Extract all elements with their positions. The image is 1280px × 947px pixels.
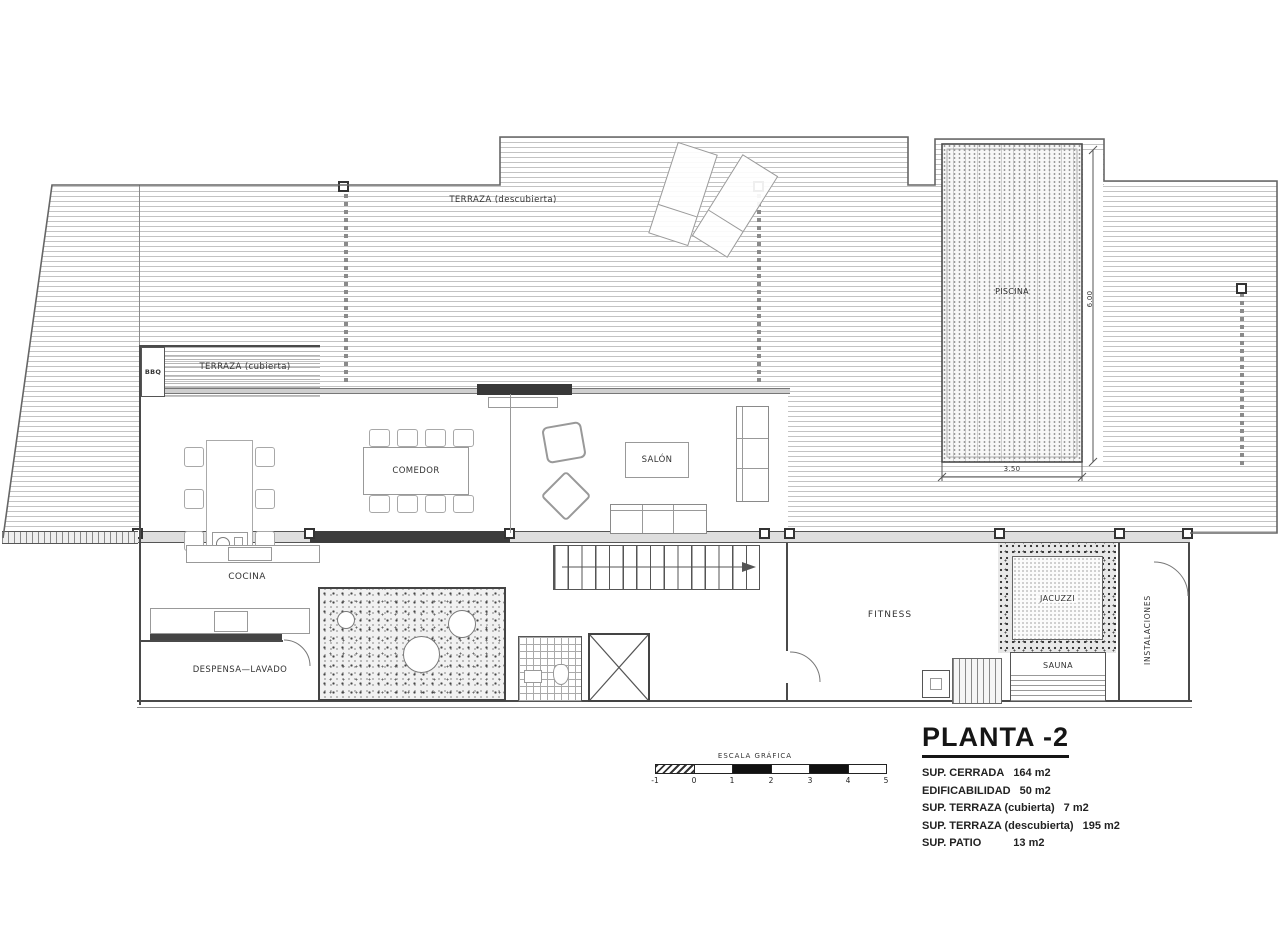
scale-segment <box>772 765 811 773</box>
deck-border-strip <box>2 531 138 544</box>
pool-width-dimension: 3.50 <box>992 465 1032 473</box>
scale-tick: 5 <box>884 776 889 785</box>
stat-label: SUP. CERRADA <box>922 767 1004 779</box>
patio-tree <box>403 636 440 673</box>
column-post <box>994 528 1005 539</box>
coffee-table: SALÓN <box>625 442 689 478</box>
chair <box>453 495 474 513</box>
column-post <box>1114 528 1125 539</box>
scale-segment <box>695 765 734 773</box>
stove-box-inner <box>930 678 942 690</box>
stool <box>184 447 204 467</box>
room-label-piscina: PISCINA <box>975 287 1049 296</box>
staircase <box>553 545 760 590</box>
glazing-south-dark-segment <box>310 531 510 543</box>
column-post <box>1182 528 1193 539</box>
room-label-terraza-cubierta: TERRAZA (cubierta) <box>185 362 305 372</box>
room-label-salon: SALÓN <box>642 455 673 465</box>
stat-row: SUP. TERRAZA (descubierta)195 m2 <box>922 818 1202 836</box>
room-label-jacuzzi: JACUZZI <box>1038 594 1077 603</box>
stat-value: 50 m2 <box>1020 785 1051 797</box>
stat-value: 13 m2 <box>1013 837 1044 849</box>
scale-segment <box>733 765 772 773</box>
scale-segment <box>849 765 887 773</box>
wall-despensa-north <box>139 640 283 642</box>
chair <box>369 495 390 513</box>
room-label-fitness: FITNESS <box>852 610 928 620</box>
sauna <box>1010 652 1106 702</box>
sliding-door-stack <box>477 384 572 395</box>
chair <box>397 495 418 513</box>
scale-segment <box>810 765 849 773</box>
room-label-terraza-descubierta: TERRAZA (descubierta) <box>438 195 568 205</box>
facade-glazing-north <box>140 388 790 394</box>
pool-length-dimension: 6.00 <box>1086 284 1094 314</box>
countertop-edge <box>150 634 282 640</box>
dining-table: COMEDOR <box>363 447 469 495</box>
stat-value: 195 m2 <box>1083 820 1120 832</box>
stat-label: SUP. PATIO <box>922 837 981 849</box>
sauna-steps <box>952 658 1002 704</box>
elevator <box>588 633 650 702</box>
column-post <box>1236 283 1247 294</box>
stool <box>255 447 275 467</box>
pool <box>942 144 1082 462</box>
scale-tick: -1 <box>651 776 658 785</box>
stat-row: EDIFICABILIDAD50 m2 <box>922 783 1202 801</box>
room-label-comedor: COMEDOR <box>392 466 439 476</box>
stool <box>184 489 204 509</box>
scale-bar-title: ESCALA GRÁFICA <box>695 752 815 760</box>
wall-fitness-west-upper <box>786 543 788 651</box>
stool <box>255 489 275 509</box>
chair <box>453 429 474 447</box>
sideboard <box>488 397 558 408</box>
patio-tree <box>337 611 355 629</box>
wall-east <box>1188 543 1190 702</box>
room-label-cocina: COCINA <box>212 572 282 582</box>
room-label-bbq: BBQ <box>141 368 165 376</box>
chair <box>369 429 390 447</box>
page-title: PLANTA -2 <box>922 722 1069 758</box>
stat-label: SUP. TERRAZA (descubierta) <box>922 820 1074 832</box>
patio-edge-left <box>344 194 348 384</box>
kitchen-appliance <box>228 547 272 561</box>
stat-label: EDIFICABILIDAD <box>922 785 1011 797</box>
scale-tick: 4 <box>846 776 851 785</box>
scale-tick: 1 <box>730 776 735 785</box>
deck-inner-edge <box>139 185 140 347</box>
scale-bar-segments <box>655 764 887 774</box>
chair <box>425 429 446 447</box>
column-post <box>784 528 795 539</box>
room-label-sauna: SAUNA <box>1022 661 1094 670</box>
scale-tick: 2 <box>769 776 774 785</box>
wall-south-outer-line <box>137 707 1192 708</box>
room-label-despensa: DESPENSA—LAVADO <box>170 665 310 675</box>
washbasin <box>524 670 542 683</box>
deck-edge-right <box>1240 293 1244 469</box>
room-label-instalaciones: INSTALACIONES <box>1143 582 1159 678</box>
scale-segment <box>656 765 695 773</box>
sofa <box>610 504 707 534</box>
stat-row: SUP. CERRADA164 m2 <box>922 765 1202 783</box>
stat-value: 7 m2 <box>1064 802 1089 814</box>
wall-west <box>139 345 141 705</box>
stat-row: SUP. PATIO13 m2 <box>922 835 1202 853</box>
stat-row: SUP. TERRAZA (cubierta)7 m2 <box>922 800 1202 818</box>
bathroom <box>518 636 582 702</box>
stat-label: SUP. TERRAZA (cubierta) <box>922 802 1055 814</box>
column-post <box>338 181 349 192</box>
sauna-benches <box>1011 675 1105 701</box>
patio-edge-right <box>757 194 761 384</box>
column-post <box>759 528 770 539</box>
column-post <box>304 528 315 539</box>
wall-instalaciones-west <box>1118 543 1120 702</box>
scale-tick: 3 <box>808 776 813 785</box>
jacuzzi: JACUZZI <box>1012 556 1103 640</box>
scale-tick: 0 <box>692 776 697 785</box>
chair <box>425 495 446 513</box>
scale-bar: ESCALA GRÁFICA -1 0 1 2 3 4 5 <box>655 752 887 788</box>
wall-terrace-north <box>139 345 320 347</box>
toilet <box>553 664 569 685</box>
counter-sink <box>214 611 248 632</box>
wall-fitness-west-lower <box>786 683 788 702</box>
stat-value: 164 m2 <box>1013 767 1050 779</box>
patio-tree <box>448 610 476 638</box>
sofa <box>736 406 769 502</box>
wall-comedor-salon-divider <box>510 394 511 533</box>
chair <box>397 429 418 447</box>
floor-plan: PISCINA 6.00 3.50 BBQ TERRAZA (descubier… <box>0 0 1280 947</box>
armchair <box>541 421 587 464</box>
title-block: PLANTA -2 SUP. CERRADA164 m2 EDIFICABILI… <box>922 722 1202 853</box>
